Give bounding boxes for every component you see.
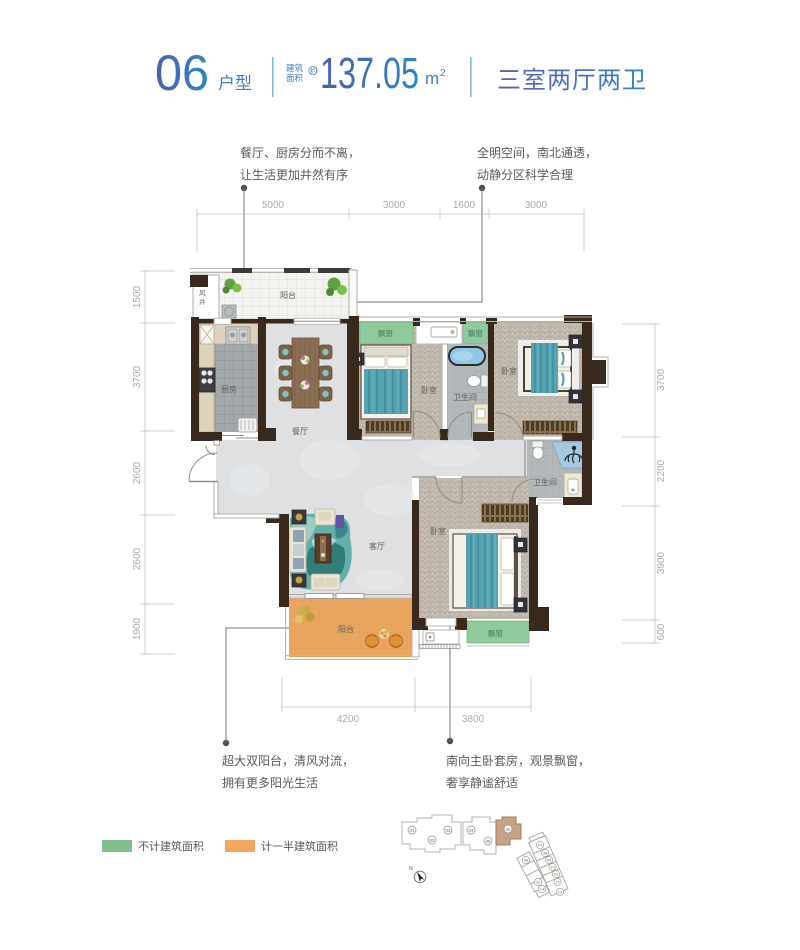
svg-text:3800: 3800 [462, 714, 485, 725]
svg-text:2: 2 [440, 68, 446, 79]
svg-text:阳台: 阳台 [338, 624, 354, 634]
svg-text:风: 风 [199, 289, 206, 297]
svg-text:阳台: 阳台 [280, 290, 296, 300]
svg-text:07: 07 [538, 843, 543, 848]
svg-text:卧室: 卧室 [430, 526, 446, 536]
svg-text:飘窗: 飘窗 [378, 328, 393, 338]
svg-text:厨房: 厨房 [221, 384, 237, 394]
svg-text:2600: 2600 [132, 461, 143, 484]
svg-text:3000: 3000 [383, 200, 406, 211]
svg-text:09: 09 [547, 858, 552, 863]
svg-text:超大双阳台，清风对流，: 超大双阳台，清风对流， [222, 753, 354, 768]
svg-text:137.05: 137.05 [320, 49, 419, 98]
svg-text:2200: 2200 [656, 459, 667, 482]
svg-text:01: 01 [409, 828, 415, 833]
svg-text:奢享静谧舒适: 奢享静谧舒适 [446, 775, 518, 790]
svg-text:动静分区科学合理: 动静分区科学合理 [477, 167, 573, 182]
svg-text:1500: 1500 [132, 285, 143, 308]
svg-text:卧室: 卧室 [501, 366, 517, 376]
svg-text:餐厅: 餐厅 [292, 427, 308, 436]
svg-text:13: 13 [558, 890, 563, 895]
svg-text:3700: 3700 [656, 368, 667, 391]
svg-text:N: N [409, 866, 413, 872]
svg-text:建筑: 建筑 [286, 63, 304, 73]
svg-text:全明空间，南北通透，: 全明空间，南北通透， [477, 145, 597, 160]
svg-text:让生活更加井然有序: 让生活更加井然有序 [240, 167, 348, 182]
svg-text:飘窗: 飘窗 [488, 628, 503, 638]
svg-text:2600: 2600 [132, 547, 143, 570]
svg-text:08: 08 [543, 851, 548, 856]
svg-text:1900: 1900 [132, 617, 143, 640]
svg-text:1600: 1600 [453, 200, 476, 211]
svg-text:12: 12 [555, 880, 560, 885]
svg-text:餐厅、厨房分而不离，: 餐厅、厨房分而不离， [240, 145, 360, 160]
svg-text:卫生间: 卫生间 [533, 477, 557, 487]
svg-text:06: 06 [505, 827, 511, 832]
svg-text:06: 06 [155, 45, 209, 101]
svg-text:南向主卧套房，观景飘窗，: 南向主卧套房，观景飘窗， [446, 753, 590, 768]
svg-text:拥有更多阳光生活: 拥有更多阳光生活 [222, 776, 318, 790]
svg-text:600: 600 [656, 623, 667, 640]
svg-text:井: 井 [199, 297, 206, 306]
svg-text:02: 02 [429, 838, 435, 843]
svg-text:m: m [425, 69, 439, 88]
svg-text:卫生间: 卫生间 [453, 392, 477, 402]
svg-text:飘窗: 飘窗 [468, 328, 483, 338]
svg-text:03: 03 [445, 828, 451, 833]
svg-text:3700: 3700 [132, 365, 143, 388]
svg-text:14: 14 [540, 887, 545, 892]
svg-text:不计建筑面积: 不计建筑面积 [138, 839, 204, 853]
svg-text:5000: 5000 [262, 200, 285, 211]
svg-text:客厅: 客厅 [369, 541, 385, 551]
svg-text:3900: 3900 [656, 551, 667, 574]
svg-text:10: 10 [550, 865, 555, 870]
svg-text:面积: 面积 [286, 73, 304, 83]
svg-text:卧室: 卧室 [421, 385, 437, 395]
svg-text:05: 05 [485, 839, 491, 844]
svg-text:4200: 4200 [337, 714, 360, 725]
svg-text:08: 08 [524, 858, 529, 863]
svg-text:计一半建筑面积: 计一半建筑面积 [261, 839, 338, 853]
svg-text:三室两厅两卫: 三室两厅两卫 [497, 67, 647, 94]
svg-text:3000: 3000 [525, 200, 548, 211]
svg-text:户型: 户型 [218, 74, 252, 93]
svg-text:04: 04 [468, 828, 474, 833]
